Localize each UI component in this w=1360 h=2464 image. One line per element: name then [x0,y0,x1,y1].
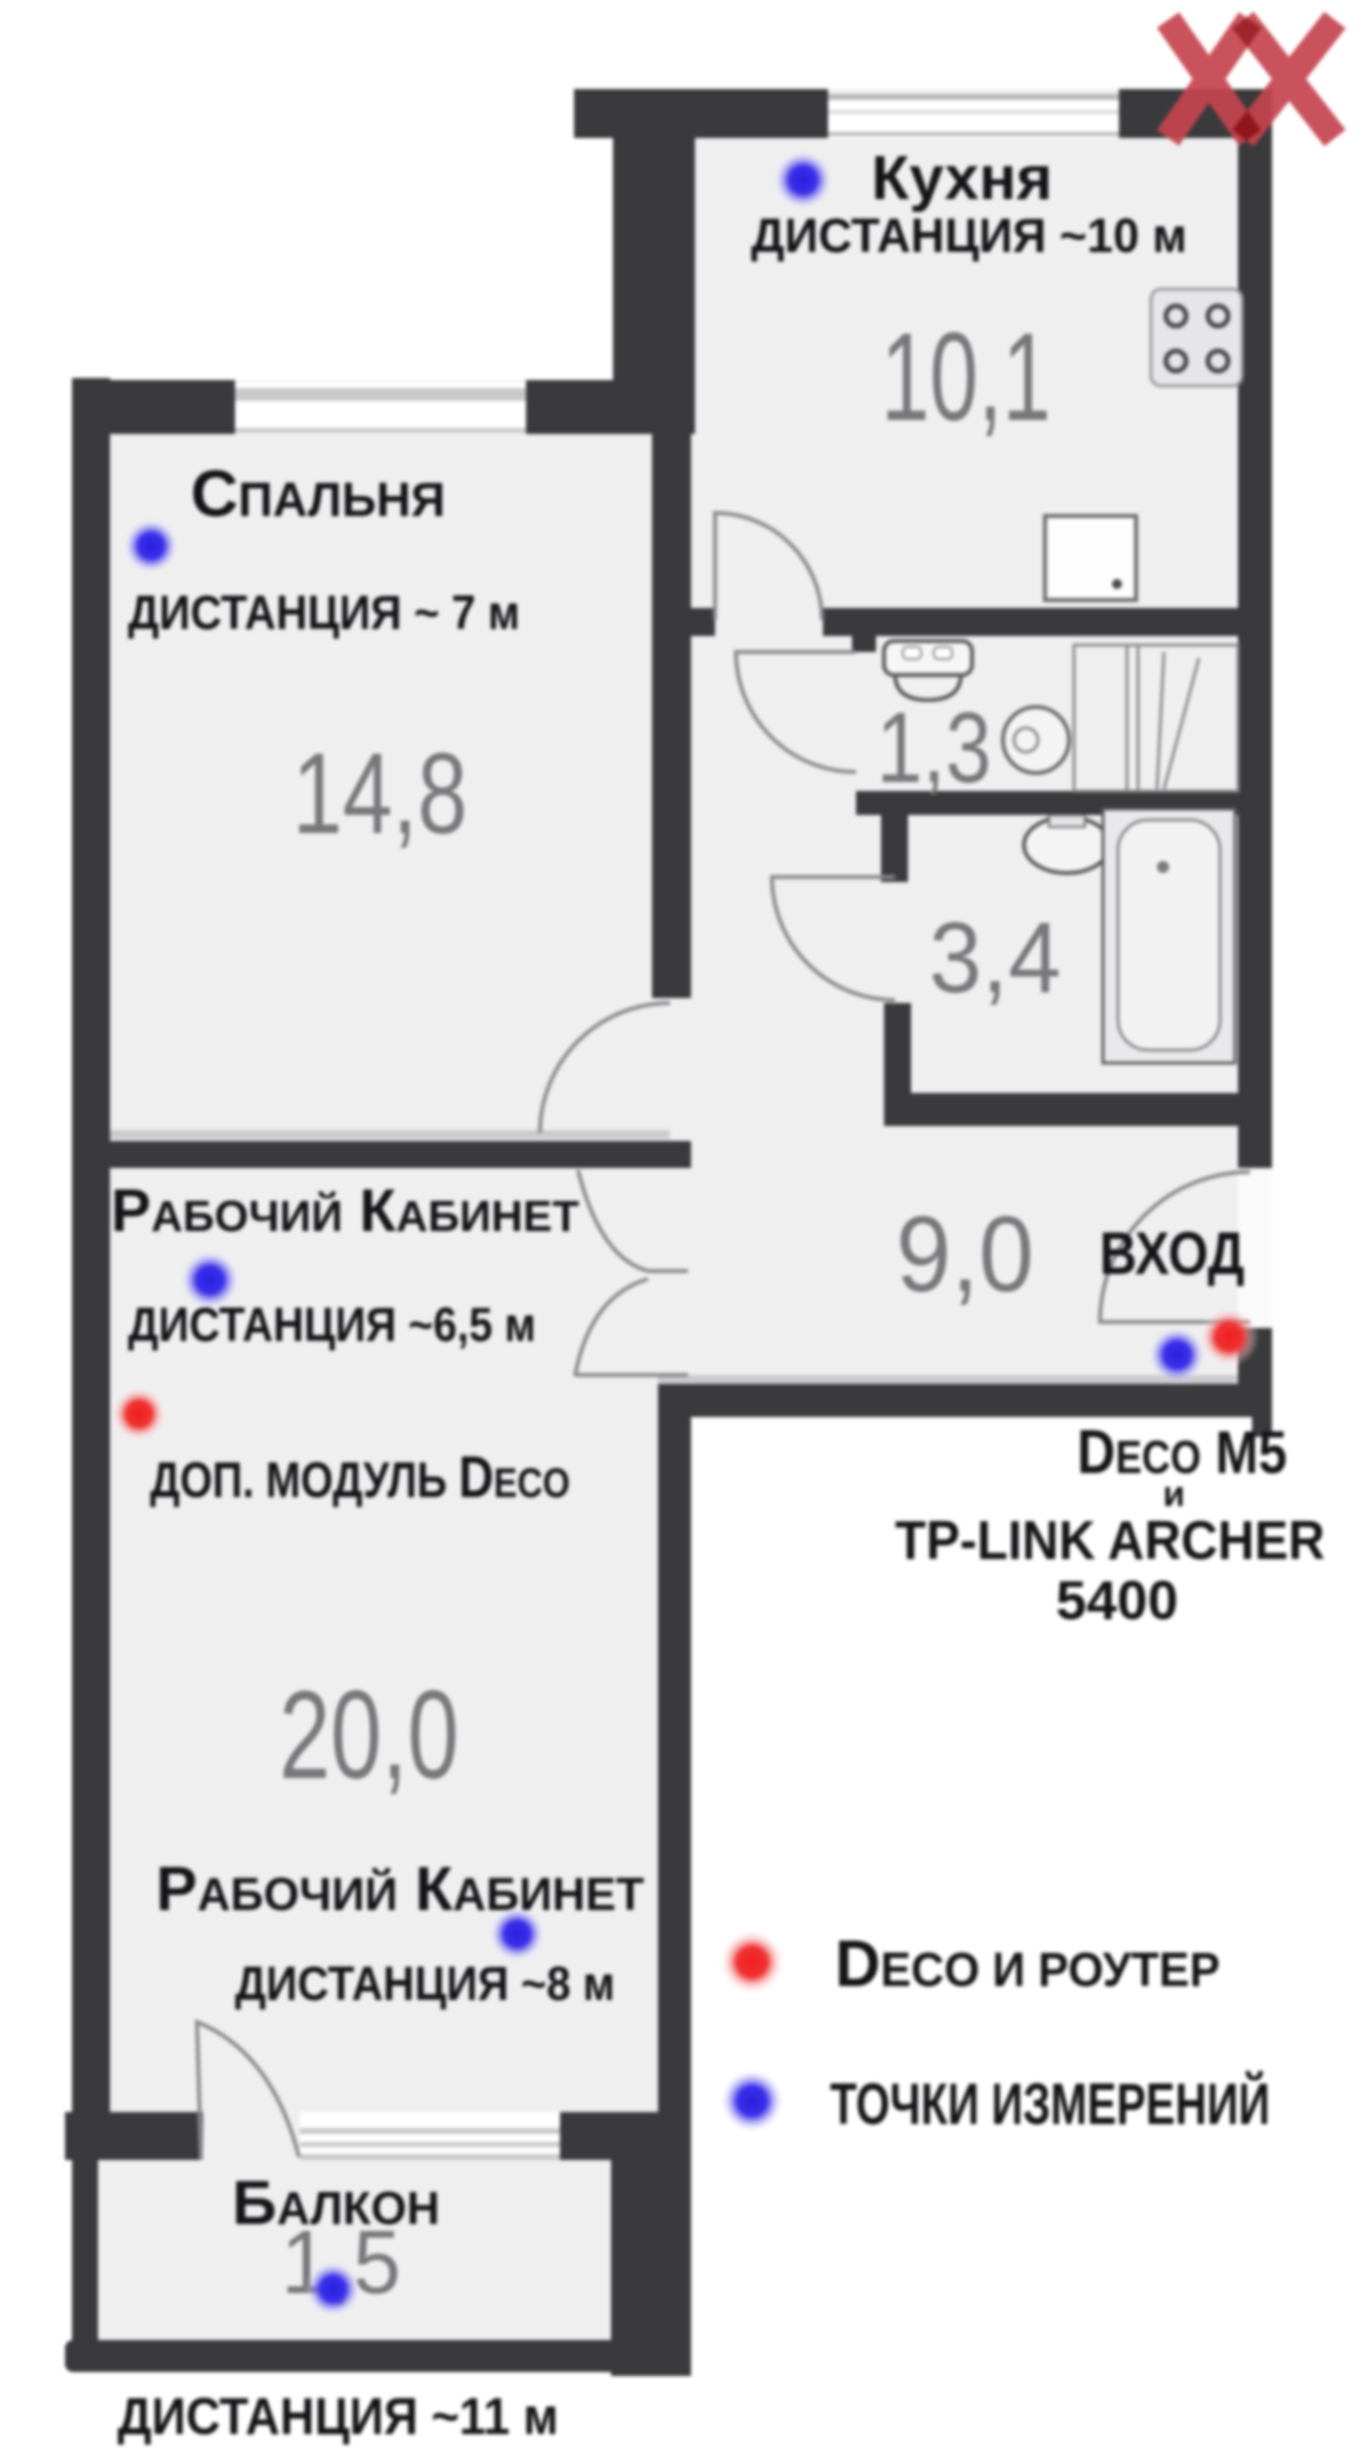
svg-text:3,4: 3,4 [929,902,1061,1014]
svg-text:ДИСТАНЦИЯ ~11 м: ДИСТАНЦИЯ ~11 м [118,2388,559,2446]
svg-text:1,3: 1,3 [877,692,992,804]
svg-text:20,0: 20,0 [279,1666,459,1805]
svg-text:ДИСТАНЦИЯ ~8 м: ДИСТАНЦИЯ ~8 м [235,1958,615,2011]
svg-text:Кухня: Кухня [871,144,1052,213]
svg-text:9,0: 9,0 [896,1193,1034,1314]
svg-text:и: и [1163,1473,1185,1514]
svg-text:TP-LINK ARCHER: TP-LINK ARCHER [895,1509,1325,1571]
svg-text:ТОЧКИ ИЗМЕРЕНИЙ: ТОЧКИ ИЗМЕРЕНИЙ [830,2072,1270,2137]
svg-text:ДИСТАНЦИЯ ~10 м: ДИСТАНЦИЯ ~10 м [751,210,1187,263]
svg-text:10,1: 10,1 [881,308,1051,447]
svg-text:14,8: 14,8 [293,730,468,858]
svg-text:5400: 5400 [1056,1569,1178,1631]
svg-text:DECO И РОУТЕР: DECO И РОУТЕР [835,1926,1220,2000]
svg-text:ДИСТАНЦИЯ ~6,5 м: ДИСТАНЦИЯ ~6,5 м [128,1299,536,1352]
svg-text:ВХОД: ВХОД [1100,1220,1245,1287]
svg-text:ДИСТАНЦИЯ ~ 7 м: ДИСТАНЦИЯ ~ 7 м [128,587,520,640]
